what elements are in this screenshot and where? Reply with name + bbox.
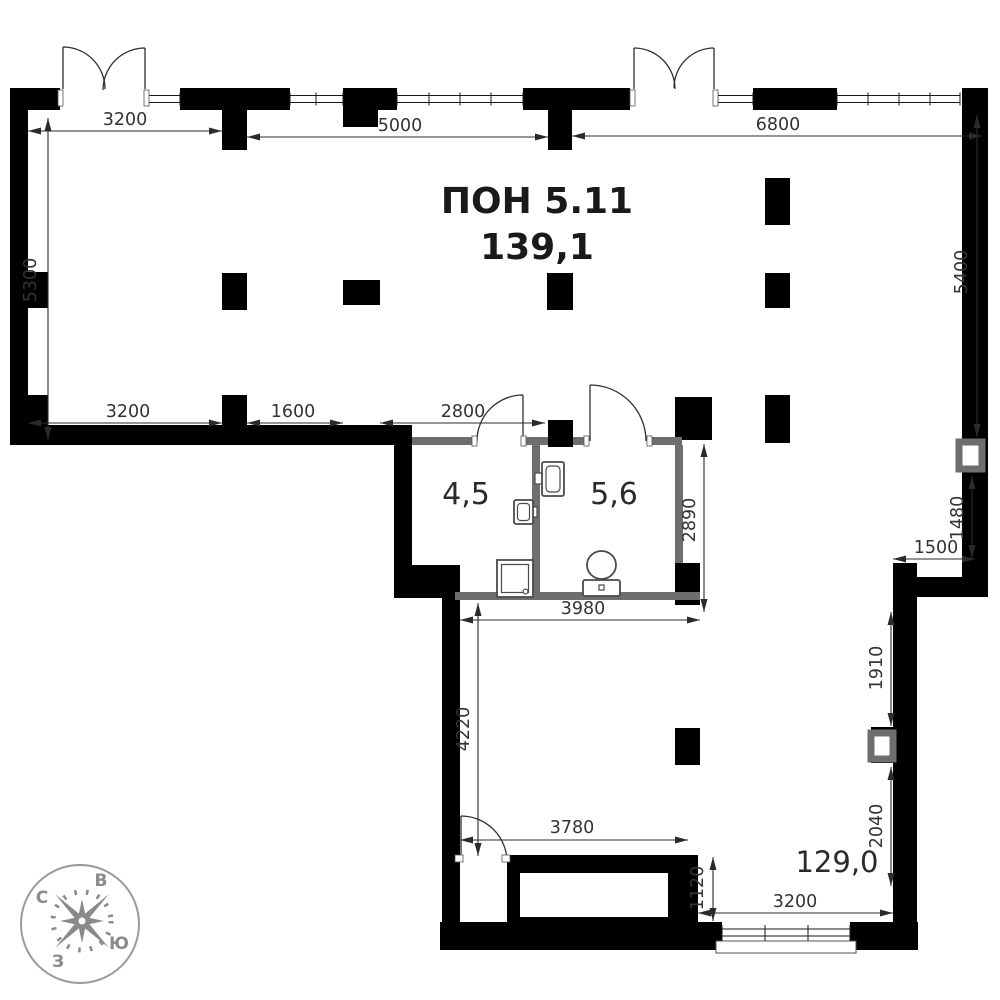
unit-title: ПОН 5.11 xyxy=(441,181,633,222)
compass-west-label: З xyxy=(52,952,64,972)
compass-east-label: В xyxy=(95,871,108,891)
window xyxy=(837,93,960,106)
labels-layer: ПОН 5.11 139,1 4,5 5,6 129,0 xyxy=(441,181,879,879)
window xyxy=(290,93,343,106)
room-label-wc-small: 4,5 xyxy=(442,477,490,512)
compass-north-label: С xyxy=(36,888,48,908)
floor-plan-page: 3200 5000 6800 5300 5400 1480 1500 1910 … xyxy=(0,0,1000,1000)
dim-top-3200: 3200 xyxy=(103,110,148,130)
unit-area: 139,1 xyxy=(480,227,594,268)
dim-right-1500: 1500 xyxy=(914,538,959,558)
dim-low-4220: 4220 xyxy=(454,707,474,752)
doors-layer xyxy=(58,47,718,862)
room-label-wc-large: 5,6 xyxy=(590,477,638,512)
dim-top-5000: 5000 xyxy=(378,116,423,136)
dim-mid-1600: 1600 xyxy=(271,402,316,422)
bottom-door xyxy=(461,816,507,862)
dim-low-3780: 3780 xyxy=(550,818,595,838)
vent-shaft-lower xyxy=(871,733,893,759)
wc-large-door xyxy=(590,385,646,441)
window xyxy=(397,93,523,106)
sink-small xyxy=(514,500,537,524)
dim-low-1120: 1120 xyxy=(688,866,708,911)
window-bottom xyxy=(716,925,856,953)
window xyxy=(718,93,753,106)
compass-south-label: Ю xyxy=(109,934,129,954)
dim-top-6800: 6800 xyxy=(756,115,801,135)
dim-low-3200: 3200 xyxy=(773,892,818,912)
dim-right-5400: 5400 xyxy=(952,250,972,295)
shower-tray xyxy=(497,560,533,597)
dim-mid-2800: 2800 xyxy=(441,402,486,422)
dim-right-2040: 2040 xyxy=(867,804,887,849)
dim-wc-2890: 2890 xyxy=(680,498,700,543)
dim-left-5300: 5300 xyxy=(21,258,41,303)
compass-rose: С В Ю З xyxy=(21,865,139,983)
vent-shaft-upper xyxy=(959,442,982,469)
dim-right-1480: 1480 xyxy=(948,496,968,541)
entrance-door-left xyxy=(63,47,145,90)
window xyxy=(148,93,180,106)
floor-plan-drawing: 3200 5000 6800 5300 5400 1480 1500 1910 … xyxy=(0,0,1000,1000)
room-label-main-area: 129,0 xyxy=(795,845,878,879)
dim-right-1910: 1910 xyxy=(867,646,887,691)
entrance-door-right xyxy=(634,48,714,89)
dim-mid-3200: 3200 xyxy=(106,402,151,422)
toilet xyxy=(583,551,620,596)
dim-wc-3980: 3980 xyxy=(561,599,606,619)
